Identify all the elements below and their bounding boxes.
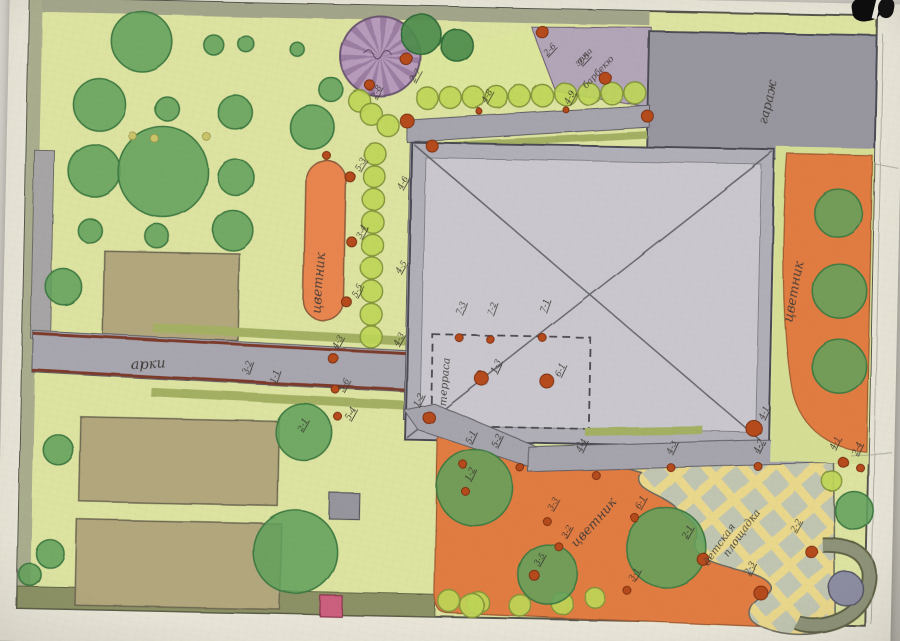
tree (436, 449, 514, 527)
hedge-bush (585, 588, 605, 608)
plant-dot (753, 585, 767, 599)
tree (78, 218, 102, 242)
tree (319, 77, 343, 101)
plant-dot (400, 114, 414, 128)
plant-dot (539, 334, 547, 342)
plant-dot (345, 172, 355, 182)
plant-dot (562, 106, 568, 112)
plant-dot (322, 151, 330, 159)
hedge-bush (822, 471, 842, 491)
tree (812, 339, 867, 394)
plant-dot (347, 237, 357, 247)
plant-dot (334, 413, 342, 421)
plant-dot (476, 109, 482, 115)
hedge-bush (361, 257, 383, 279)
tree (45, 269, 82, 306)
veg-bed-lower-1 (79, 417, 279, 505)
veg-bed-lower-2 (75, 519, 282, 609)
tree (43, 435, 74, 466)
plant-dot (423, 411, 435, 423)
utility-square (329, 493, 360, 520)
tree (218, 95, 253, 130)
plant-dot (456, 334, 464, 342)
hedge-bush (416, 87, 438, 109)
tree (212, 210, 253, 251)
plant-dot (459, 460, 467, 468)
plant-dot (516, 463, 524, 471)
hedge-bush (360, 303, 382, 325)
plant-dot (592, 471, 600, 479)
tree (814, 189, 863, 238)
black-ink-mark (852, 0, 898, 23)
hedge-bush (359, 325, 381, 347)
tree (111, 11, 172, 72)
pond-circle (828, 571, 863, 606)
plant-dot (341, 297, 351, 307)
tree (218, 159, 255, 196)
pink-square (320, 595, 342, 616)
plant-dot (540, 374, 554, 388)
plant-dot (554, 542, 562, 550)
plant-dot (623, 587, 631, 595)
plant-dot (746, 420, 762, 436)
green-strip-bottom-path (585, 426, 703, 436)
accent-dot (151, 135, 159, 143)
hedge-bush (460, 593, 484, 617)
ink-blob-right (876, 0, 895, 19)
hedge-bush (439, 87, 461, 109)
tree (155, 97, 179, 121)
plan-paper-sheet: 2-82-74-84-92-62-55-33-45-54-64-54-34-33… (0, 0, 900, 641)
tree (145, 224, 169, 248)
plant-dot (426, 139, 438, 151)
hedge-bush (601, 82, 623, 104)
tree (73, 78, 126, 131)
accent-dot (203, 133, 211, 141)
plant-dot (400, 53, 412, 65)
hedge-bush (438, 590, 460, 612)
tree (517, 543, 578, 604)
tree (290, 42, 304, 56)
plant-dot (475, 372, 489, 386)
tree (835, 491, 874, 530)
plant-dot (461, 487, 469, 495)
hedge-bush (360, 280, 382, 302)
tree (812, 264, 867, 319)
plant-dot (631, 514, 639, 522)
plant-dot (328, 353, 338, 363)
tree (238, 35, 254, 51)
tree (401, 14, 442, 55)
tree (36, 539, 65, 568)
plant-dot (838, 457, 848, 467)
plant-dot (487, 336, 495, 344)
hedge-bush (377, 114, 399, 136)
hedge-bush (532, 85, 554, 107)
hedge-bush (363, 165, 385, 187)
photo-of-garden-plan: 2-82-74-84-92-62-55-33-45-54-64-54-34-33… (0, 0, 900, 641)
plant-dot (529, 570, 539, 580)
left-side-path (31, 150, 55, 338)
hedge-bush (362, 188, 384, 210)
hedge-bush (624, 82, 646, 104)
plant-dot (641, 110, 653, 122)
plant-dot (543, 517, 551, 525)
tree (204, 35, 224, 55)
label-arch-path: арки (130, 355, 165, 373)
plant-dot (805, 545, 817, 557)
plant-dot (536, 26, 548, 38)
accent-dot (129, 132, 137, 140)
tree (252, 509, 338, 595)
hedge-bush (509, 85, 531, 107)
plant-dot (667, 464, 675, 472)
tree (68, 144, 121, 197)
tree (440, 29, 473, 62)
tree (18, 563, 40, 585)
garden-plan-drawing: 2-82-74-84-92-62-55-33-45-54-64-54-34-33… (0, 0, 900, 641)
tree (290, 105, 335, 150)
plant-dot (754, 462, 762, 470)
plant-dot (856, 464, 864, 472)
